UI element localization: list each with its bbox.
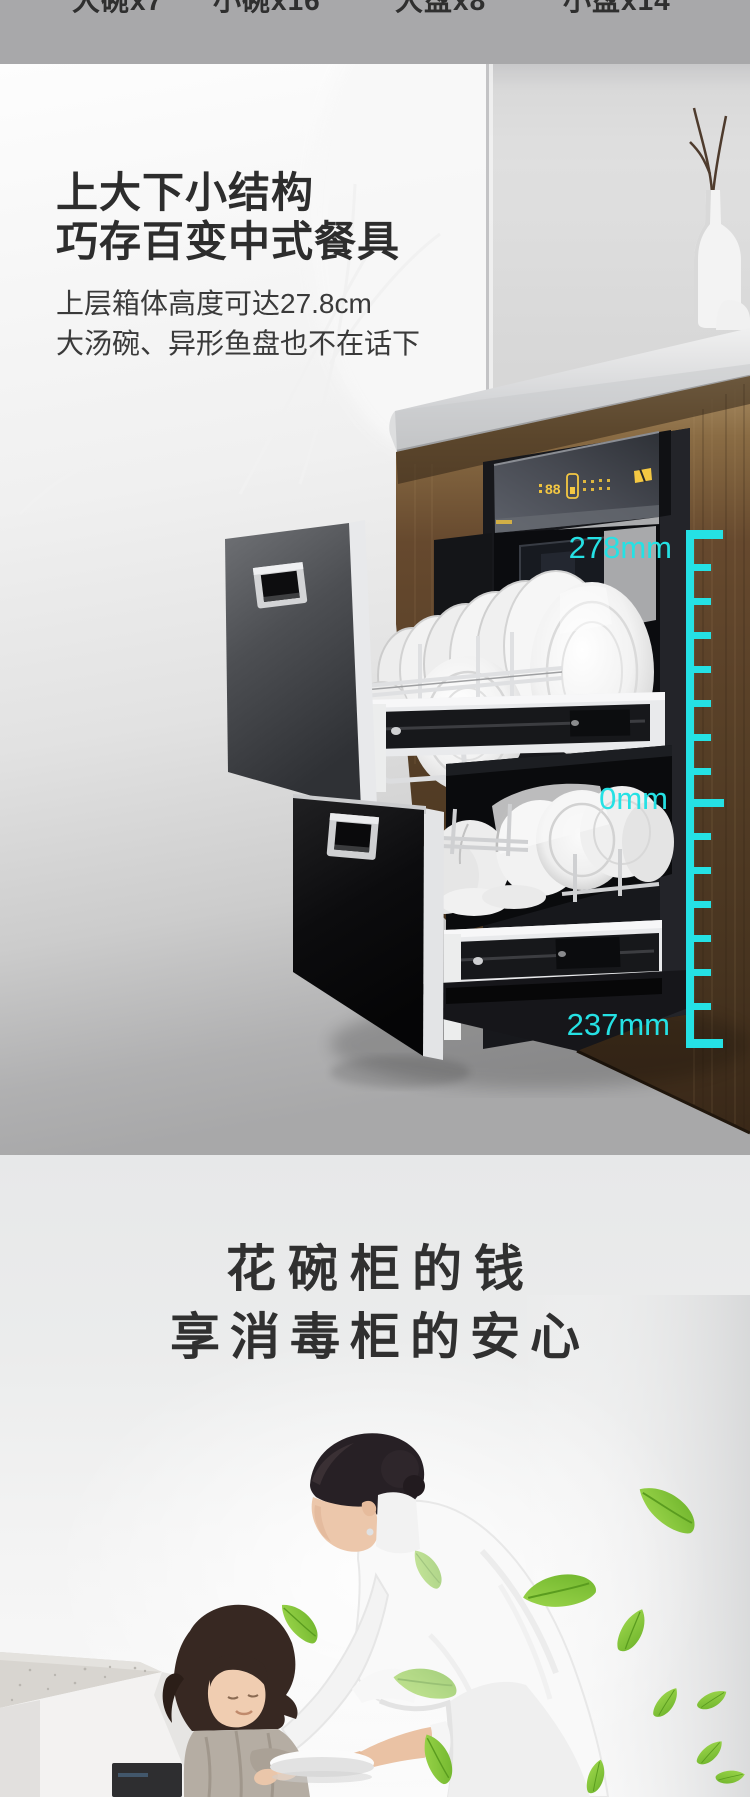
svg-text:278mm: 278mm xyxy=(569,530,672,565)
svg-text:88: 88 xyxy=(545,481,561,497)
svg-text:0mm: 0mm xyxy=(599,781,668,816)
svg-text:237mm: 237mm xyxy=(567,1007,670,1042)
